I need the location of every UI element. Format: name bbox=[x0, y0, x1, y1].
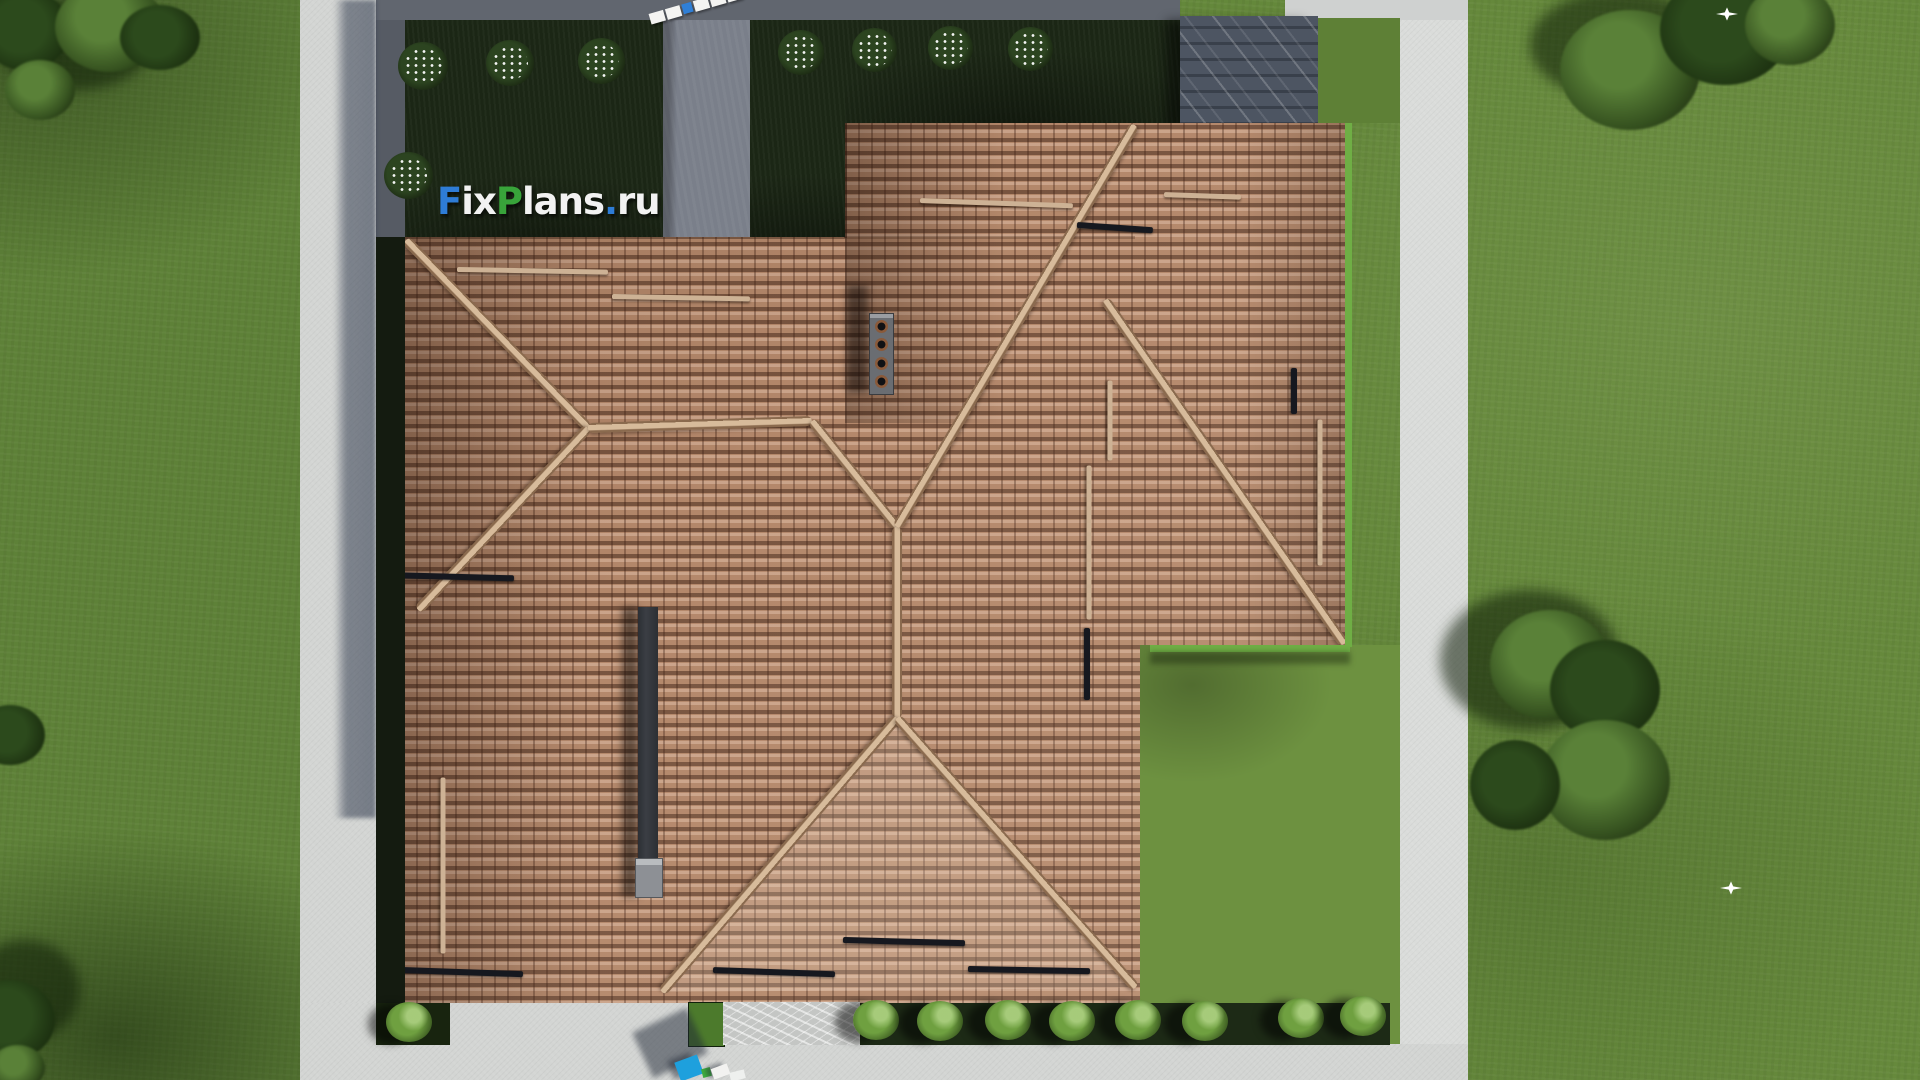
flower-bush bbox=[852, 28, 897, 72]
roof-window-bar bbox=[1084, 628, 1090, 700]
vehicle-panel bbox=[665, 5, 682, 20]
bird-icon bbox=[1720, 880, 1742, 896]
house-shadow-on-sidewalk bbox=[334, 0, 376, 818]
tree bbox=[5, 60, 75, 120]
hedge-bush bbox=[1115, 1000, 1161, 1040]
center-ridge bbox=[892, 527, 902, 718]
vehicle-panel bbox=[709, 0, 726, 7]
roof-window-bar bbox=[1077, 222, 1153, 233]
vehicle-panel bbox=[725, 0, 742, 2]
flower-bush bbox=[1008, 27, 1053, 71]
logo-seg: ix bbox=[461, 180, 496, 223]
flower-bush bbox=[384, 152, 433, 199]
snow-rail bbox=[612, 294, 750, 301]
roof-shade-west bbox=[405, 237, 590, 1003]
snow-rail bbox=[1087, 466, 1092, 620]
hedge-bush bbox=[1049, 1001, 1095, 1041]
chimney-center bbox=[869, 313, 894, 395]
driveway-top-band bbox=[376, 0, 1180, 20]
flue-shadow bbox=[622, 607, 638, 897]
valley-ridge bbox=[808, 418, 901, 530]
hedge-bush bbox=[1340, 996, 1386, 1036]
roof-window-bar bbox=[1291, 368, 1297, 414]
chimney-shadow bbox=[847, 285, 868, 392]
flower-bush bbox=[928, 26, 973, 70]
roof-junction-line bbox=[845, 236, 1135, 239]
snow-rail bbox=[1164, 192, 1241, 200]
logo-seg: ru bbox=[617, 180, 660, 223]
pergola-roof bbox=[1180, 16, 1318, 125]
vehicle-panel bbox=[693, 0, 710, 11]
hedge-bush bbox=[985, 1000, 1031, 1040]
snow-rail bbox=[1318, 420, 1323, 566]
aerial-render-scene: FixPlans.ru bbox=[0, 0, 1920, 1080]
chimney-pot bbox=[875, 320, 888, 333]
vehicle-panel bbox=[648, 9, 665, 24]
tall-flue bbox=[638, 607, 658, 860]
grass-right-of-roof bbox=[1140, 645, 1400, 1044]
garden-bed-left bbox=[376, 237, 405, 1003]
logo-seg: lans bbox=[522, 180, 604, 223]
hedge-bush bbox=[1278, 998, 1324, 1038]
flower-bush bbox=[778, 30, 824, 75]
vehicle-sunroof bbox=[681, 2, 693, 14]
hedge-bush bbox=[853, 1000, 899, 1040]
wing-eave-shadow bbox=[1150, 652, 1350, 664]
lawn-edging-right bbox=[1345, 123, 1352, 647]
hedge-bush bbox=[386, 1002, 432, 1042]
flower-bush bbox=[486, 40, 534, 86]
sidewalk-right bbox=[1400, 0, 1468, 1080]
logo-seg: . bbox=[604, 180, 617, 223]
hedge-bush bbox=[917, 1001, 963, 1041]
snow-rail bbox=[1108, 381, 1113, 461]
hedge-bush bbox=[1182, 1001, 1228, 1041]
main-ridge bbox=[588, 416, 812, 433]
chimney-pot bbox=[875, 338, 888, 351]
flower-bush bbox=[398, 42, 448, 90]
chimney-pot bbox=[875, 375, 888, 388]
entry-stone-pad bbox=[723, 1002, 860, 1045]
chimney-pot bbox=[875, 357, 888, 370]
snow-rail bbox=[441, 778, 446, 954]
watermark-logo: FixPlans.ru bbox=[437, 180, 660, 223]
bird-icon bbox=[1716, 6, 1738, 22]
flower-bush bbox=[578, 38, 625, 84]
entry-walkway-top bbox=[663, 20, 750, 237]
grass-notch-by-pergola bbox=[1318, 18, 1400, 123]
flue-vent-cap bbox=[635, 858, 663, 898]
lawn-edging-wing bbox=[1150, 645, 1350, 652]
tree bbox=[1470, 740, 1560, 830]
tree bbox=[120, 5, 200, 70]
logo-seg: F bbox=[437, 180, 461, 223]
logo-seg: P bbox=[496, 180, 522, 223]
